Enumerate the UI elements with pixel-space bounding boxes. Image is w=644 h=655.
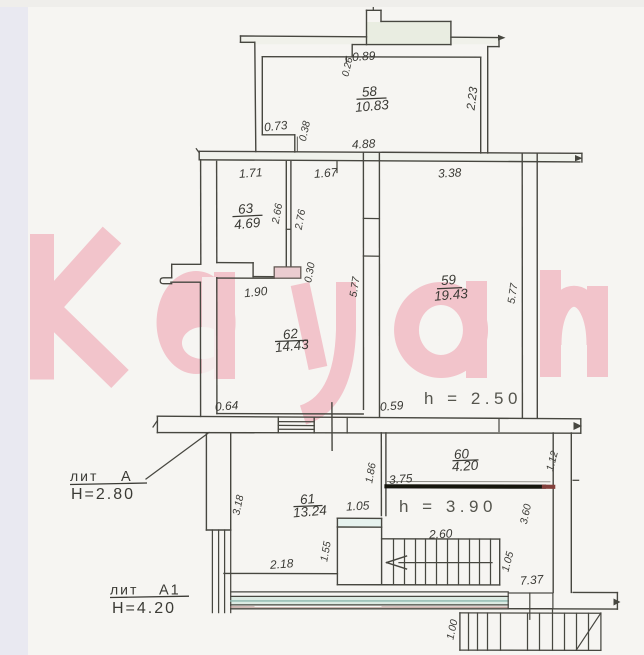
svg-text:1.67: 1.67 [314,165,340,181]
svg-text:1.90: 1.90 [243,284,268,300]
svg-text:лит: лит [110,582,138,598]
svg-text:1.71: 1.71 [239,165,263,181]
svg-text:2.18: 2.18 [269,556,295,572]
svg-text:3.38: 3.38 [438,165,462,180]
svg-text:h = 2.50: h = 2.50 [424,389,522,408]
svg-text:4.69: 4.69 [233,215,261,233]
svg-text:3.75: 3.75 [389,471,414,487]
svg-text:7.37: 7.37 [520,572,546,588]
svg-text:А: А [121,469,133,485]
svg-text:2.60: 2.60 [428,526,453,541]
svg-text:0.59: 0.59 [380,398,405,414]
svg-text:2.23: 2.23 [464,86,481,112]
svg-text:Н=4.20: Н=4.20 [112,600,176,617]
svg-text:63: 63 [237,200,254,217]
svg-text:4.88: 4.88 [352,136,376,151]
svg-text:59: 59 [440,272,457,288]
svg-text:0.89: 0.89 [352,48,377,64]
svg-text:1.05: 1.05 [346,498,370,513]
svg-text:h = 3.90: h = 3.90 [399,497,497,516]
svg-text:лит: лит [70,468,98,484]
svg-text:0.73: 0.73 [263,118,288,134]
svg-text:0.64: 0.64 [215,398,240,414]
svg-text:Н=2.80: Н=2.80 [71,486,135,503]
